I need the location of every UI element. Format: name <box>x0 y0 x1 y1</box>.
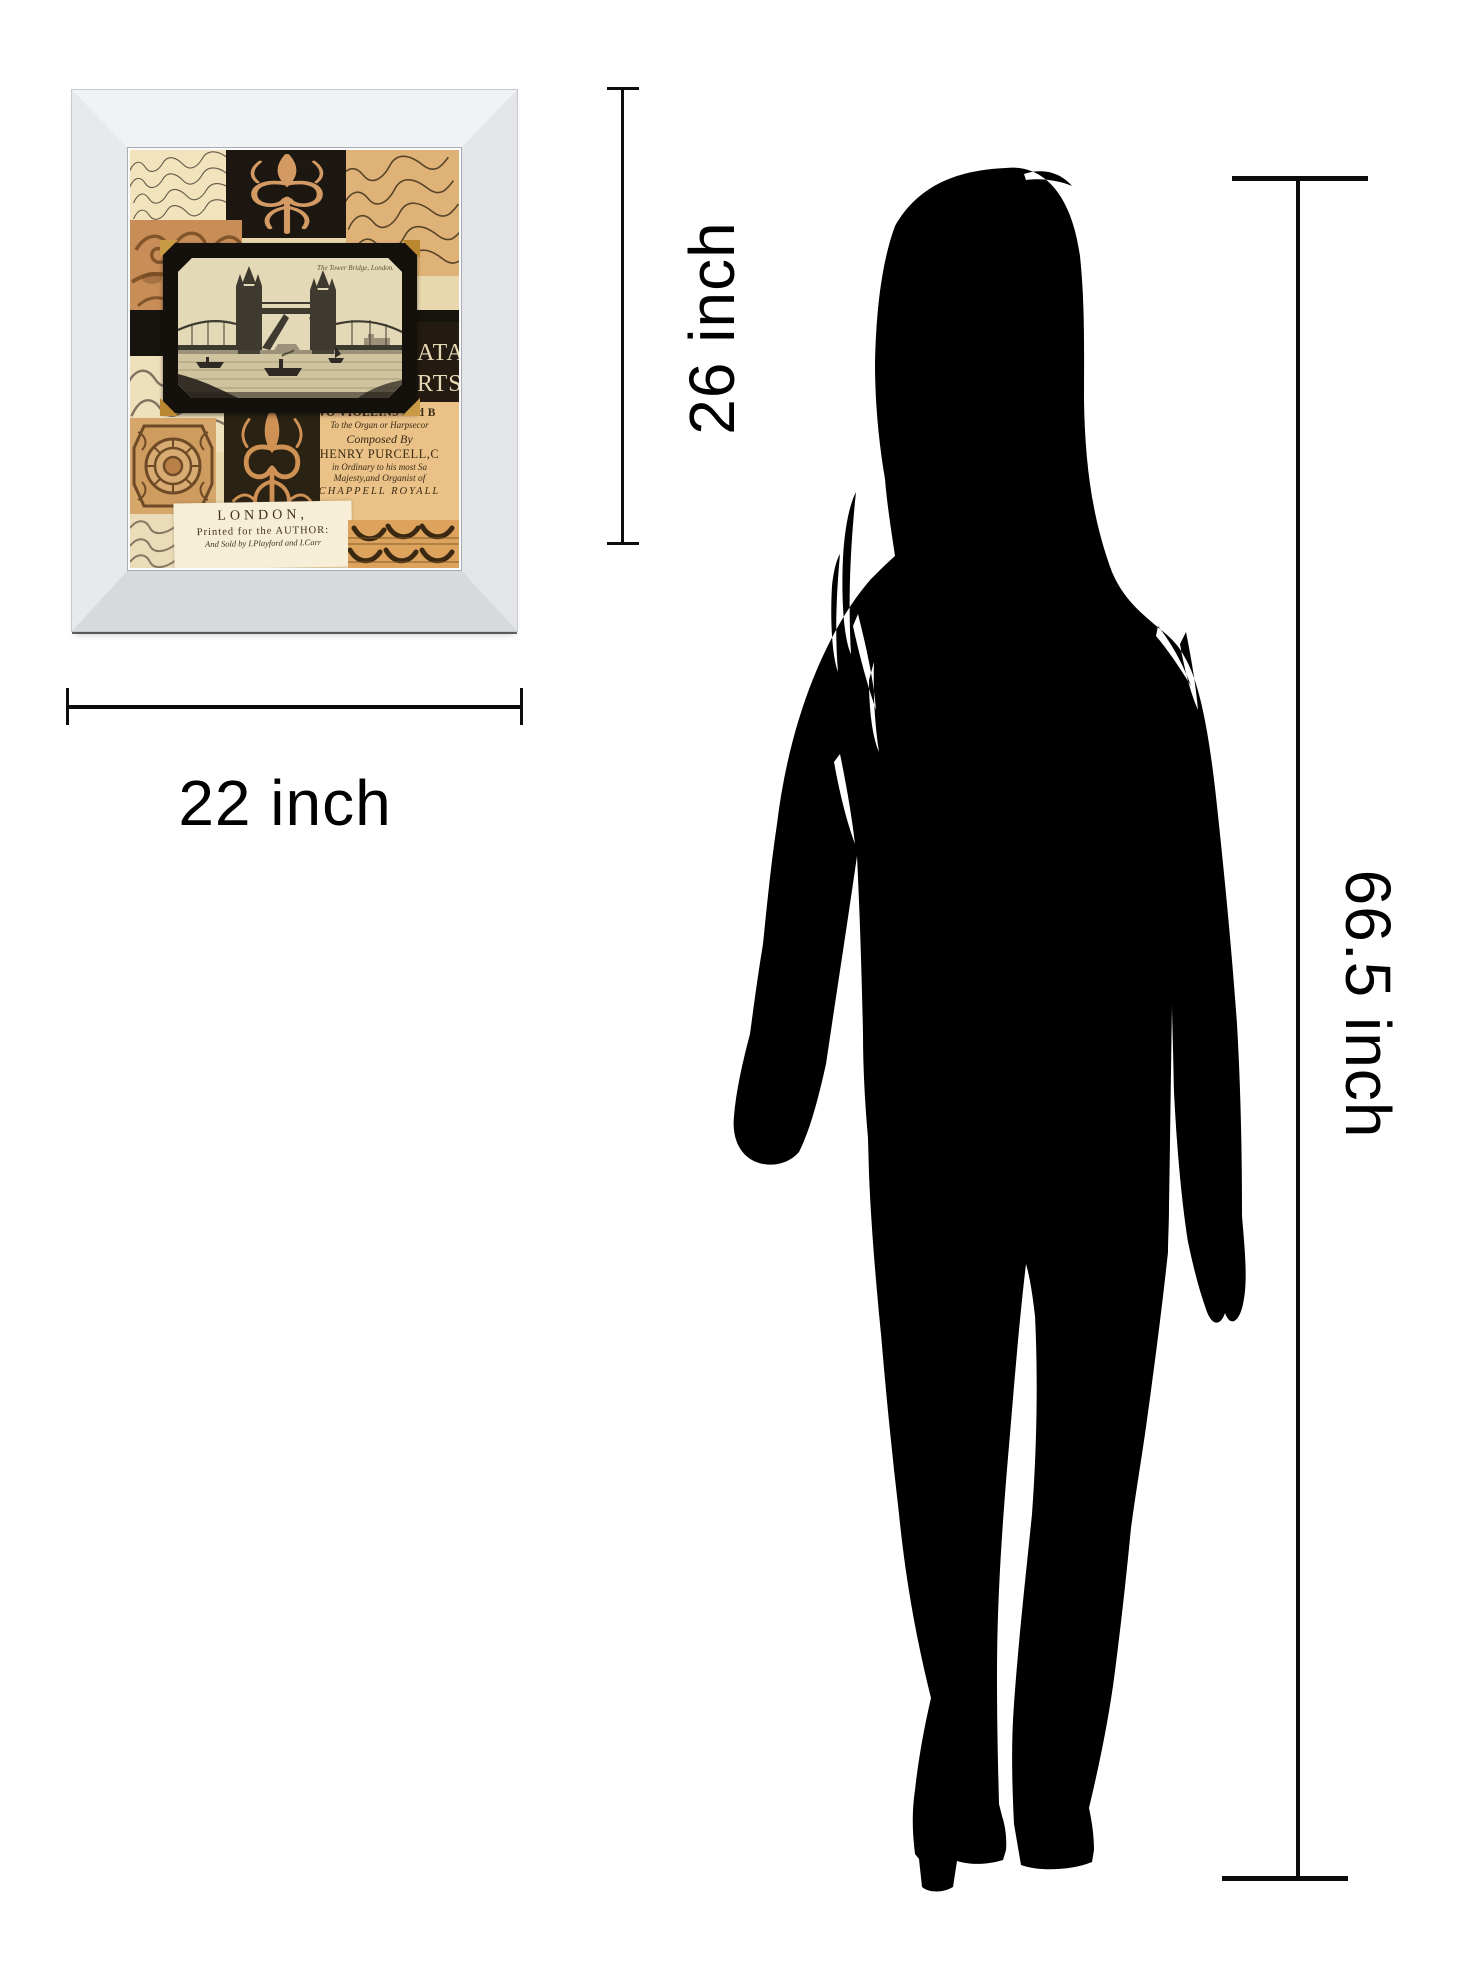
person-height-dimension-label: 66.5 inch <box>1331 870 1405 1139</box>
script-paper-patch-bottom-left <box>130 514 176 568</box>
width-dimension-label: 22 inch <box>178 766 391 840</box>
concert-line: HENRY PURCELL,C <box>306 447 453 463</box>
gold-corner-icon <box>402 240 420 258</box>
fragment-text: ATA <box>417 338 459 369</box>
fragment-text: RTS <box>417 369 459 400</box>
postcard-mat: The Tower Bridge, London. <box>163 243 417 413</box>
scroll-patch-bottom-right <box>348 520 459 568</box>
height-dimension-line <box>621 88 624 545</box>
tower-bridge-illustration <box>178 258 402 398</box>
scroll-ornament <box>348 520 459 568</box>
person-silhouette <box>728 162 1258 1892</box>
person-height-top-tick <box>1232 176 1368 181</box>
concert-line: Composed By <box>306 432 453 447</box>
photo-caption: The Tower Bridge, London. <box>317 264 394 272</box>
script-texture <box>130 514 176 568</box>
height-dimension-top-tick <box>607 87 639 90</box>
concert-line: in Ordinary to his most Sa <box>306 462 453 473</box>
width-dimension-left-tick <box>66 688 69 725</box>
person-height-dimension-line <box>1296 178 1300 1880</box>
person-height-bottom-tick <box>1222 1876 1348 1881</box>
product-size-comparison-figure: ATA RTS TWO VIOLLINS And B To the Organ … <box>0 0 1463 1975</box>
concert-line: Majesty,and Organist of <box>306 474 453 486</box>
gold-corner-icon <box>160 240 178 258</box>
concert-line: To the Organ or Harpsecor <box>306 420 453 431</box>
damask-motif <box>226 150 348 238</box>
gold-corner-icon <box>160 398 178 416</box>
tower-bridge-photo: The Tower Bridge, London. <box>178 258 402 398</box>
rosette-patch <box>130 418 216 514</box>
concert-line: CHAPPELL ROYALL <box>306 485 453 498</box>
damask-patch-top <box>226 150 348 238</box>
gold-corner-icon <box>402 398 420 416</box>
width-dimension-line <box>67 705 522 709</box>
framed-artwork: ATA RTS TWO VIOLLINS And B To the Organ … <box>72 90 517 631</box>
publisher-label-patch: LONDON, Printed for the AUTHOR: And Sold… <box>173 500 352 568</box>
rosette-ornament <box>130 418 216 514</box>
height-dimension-bottom-tick <box>607 542 639 545</box>
artwork-collage: ATA RTS TWO VIOLLINS And B To the Organ … <box>130 150 459 568</box>
width-dimension-right-tick <box>520 688 523 725</box>
